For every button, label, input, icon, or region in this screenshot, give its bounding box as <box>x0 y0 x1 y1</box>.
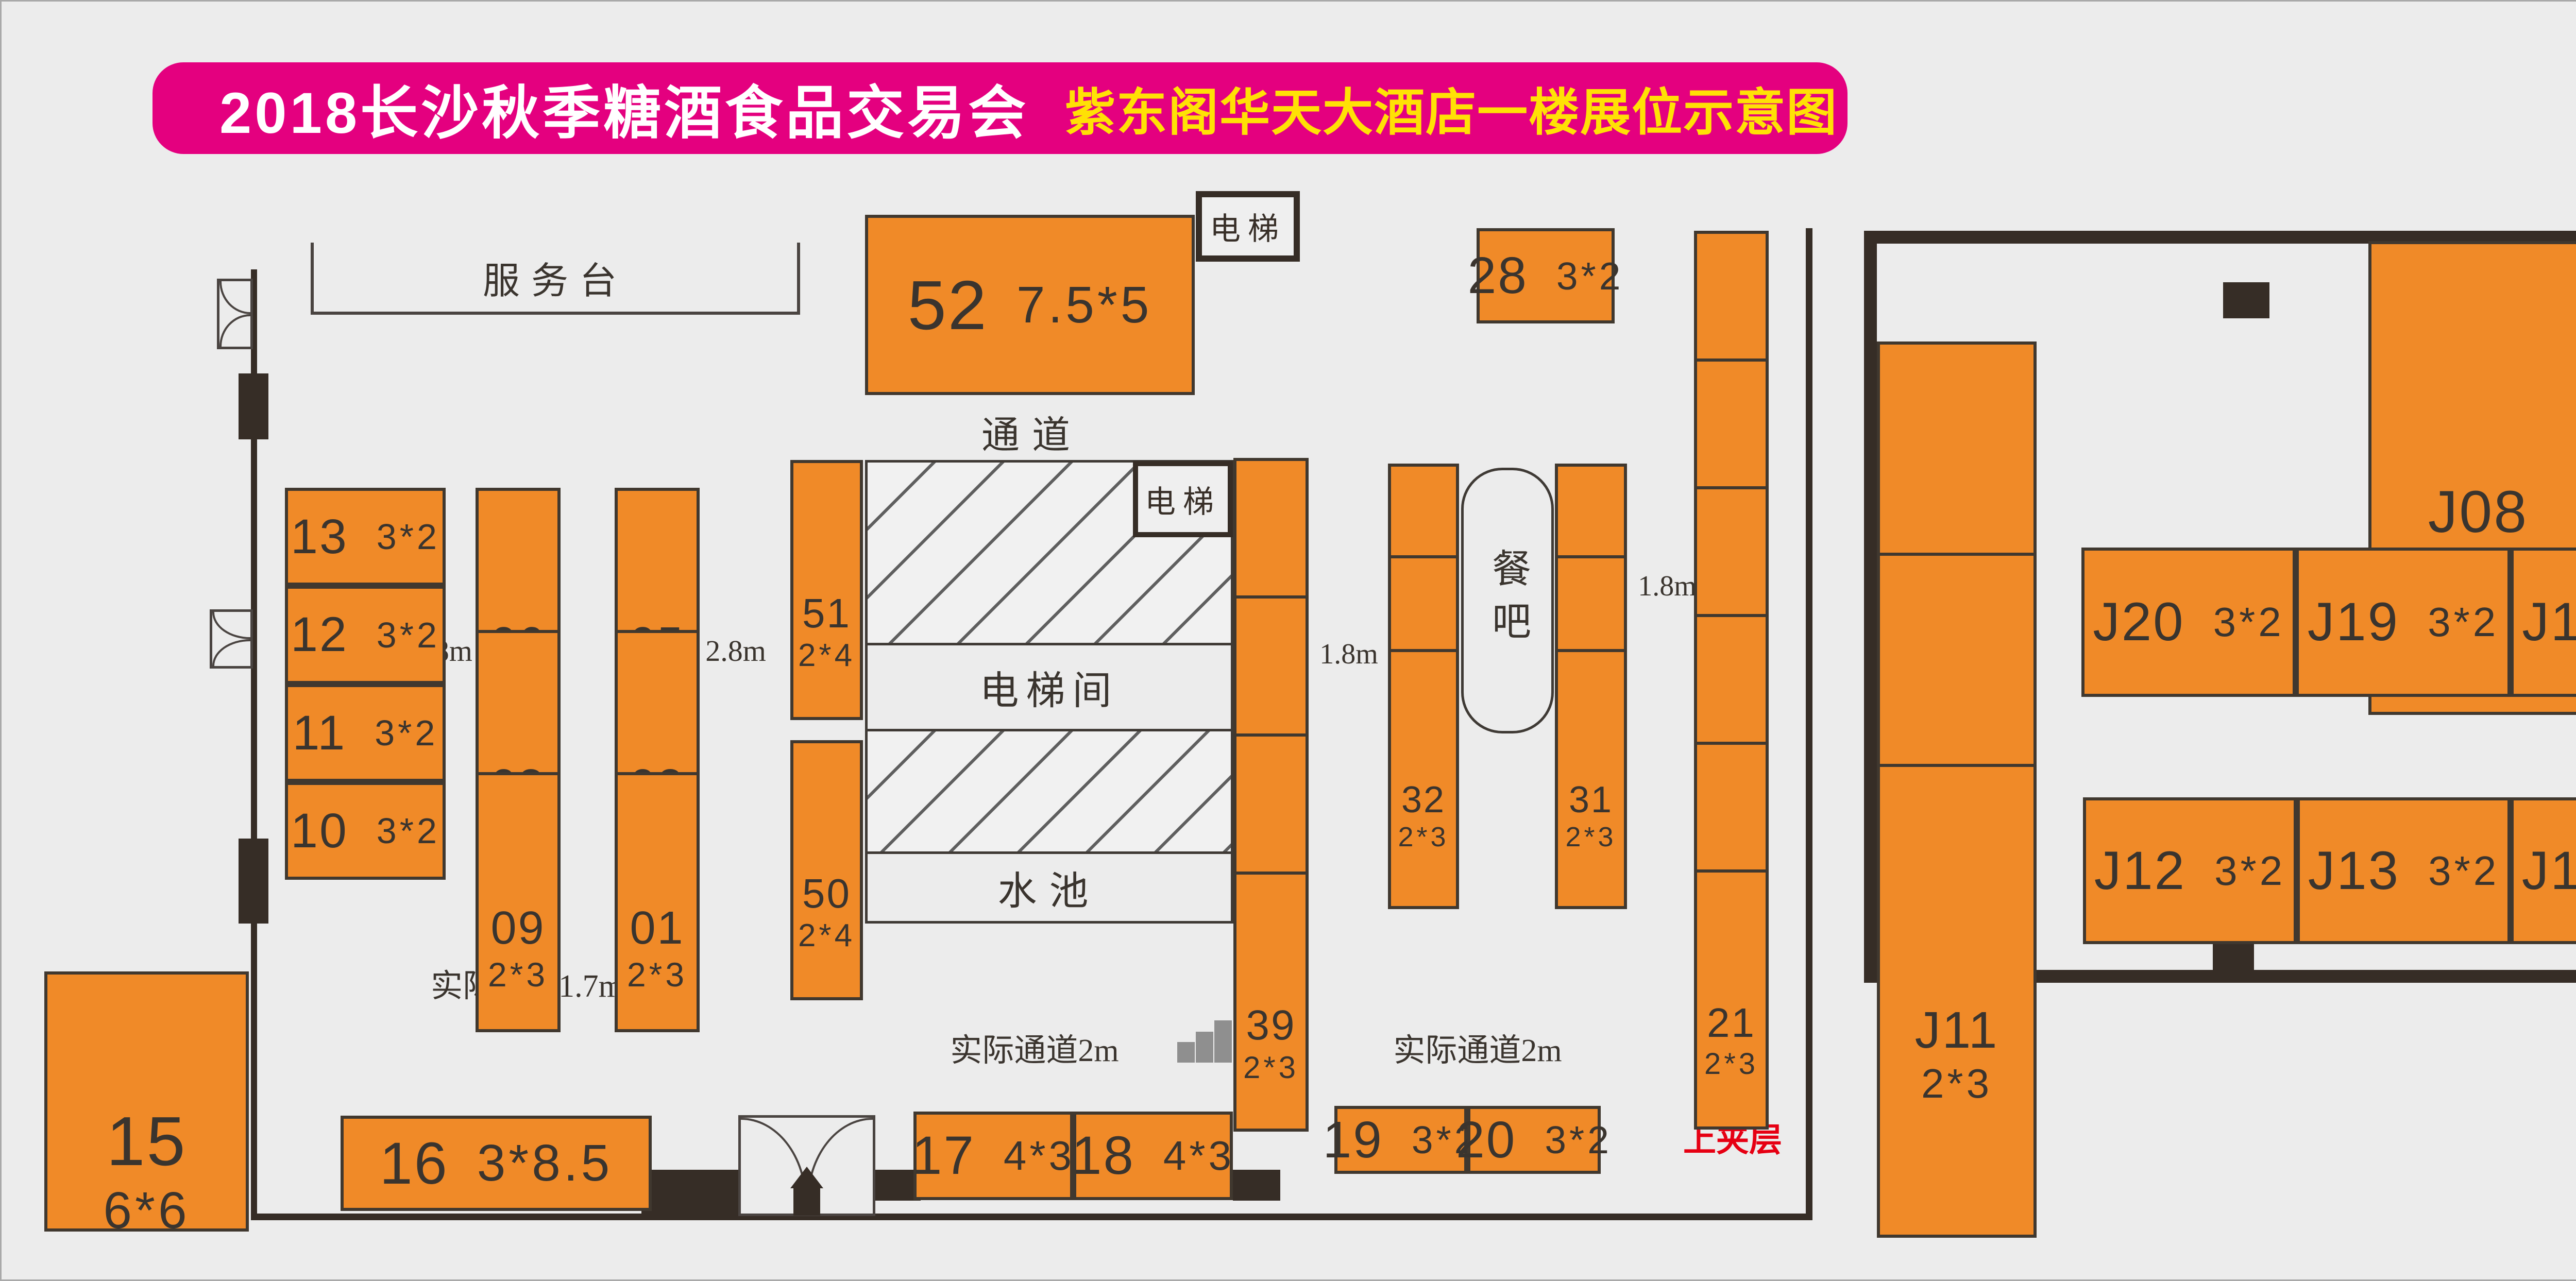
booth-J12: J123*2 <box>2083 797 2297 944</box>
booth-J20: J203*2 <box>2081 548 2296 697</box>
floorplan-canvas: 2018长沙秋季糖酒食品交易会 紫东阁华天大酒店一楼展位示意图 紫东阁华天大酒店… <box>0 0 2576 1281</box>
booth-J15: J153*2 <box>2511 797 2576 944</box>
booth-J18: J183*2 <box>2511 548 2576 697</box>
right-hall-booths: J092*3J102*3J112*3J083*3J073*3J203*2J193… <box>2 2 2576 1279</box>
booth-J11: J112*3 <box>1877 764 2037 1238</box>
booth-J19: J193*2 <box>2296 548 2511 697</box>
booth-J13: J133*2 <box>2297 797 2511 944</box>
